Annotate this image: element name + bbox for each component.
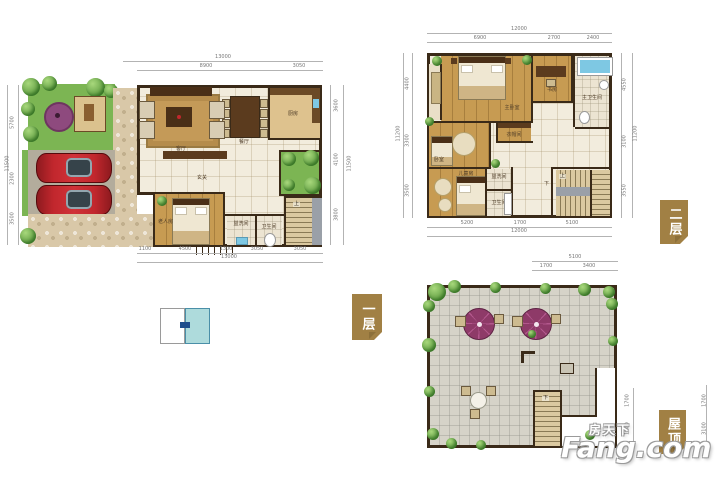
watermark-logo: Fang.com — [561, 431, 711, 464]
floorplan-image: 厨房 餐厅 客厅 玄关 — [0, 0, 720, 480]
stairs-down-label: 下 — [542, 396, 549, 401]
patio-table — [470, 392, 487, 409]
roof-plan: 下 5100 1700 — [0, 0, 720, 480]
dim-roof-top-total: 5100 — [569, 255, 582, 260]
dim-roof-right-seg: 1700 — [703, 389, 708, 413]
dim-roof-top-seg: 1700 — [540, 264, 553, 269]
roof-hatch — [560, 363, 574, 374]
umbrella — [463, 308, 495, 340]
umbrella — [520, 308, 552, 340]
roof-lower-section — [595, 368, 615, 417]
dim-roof-right-seg: 1700 — [626, 389, 631, 413]
dim-roof-top-seg: 3400 — [583, 264, 596, 269]
